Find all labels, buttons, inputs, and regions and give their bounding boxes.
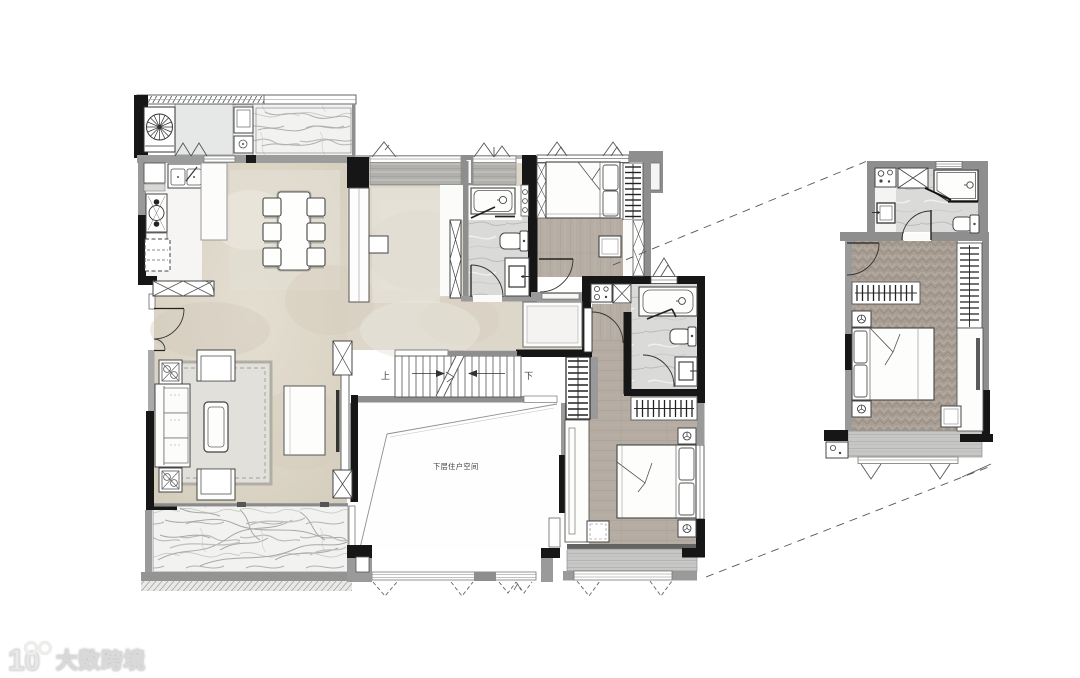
svg-text:下层住户空间: 下层住户空间: [433, 462, 479, 471]
svg-text:上: 上: [381, 371, 390, 381]
svg-text:下: 下: [524, 371, 533, 381]
svg-text:大数跨境: 大数跨境: [56, 648, 146, 673]
